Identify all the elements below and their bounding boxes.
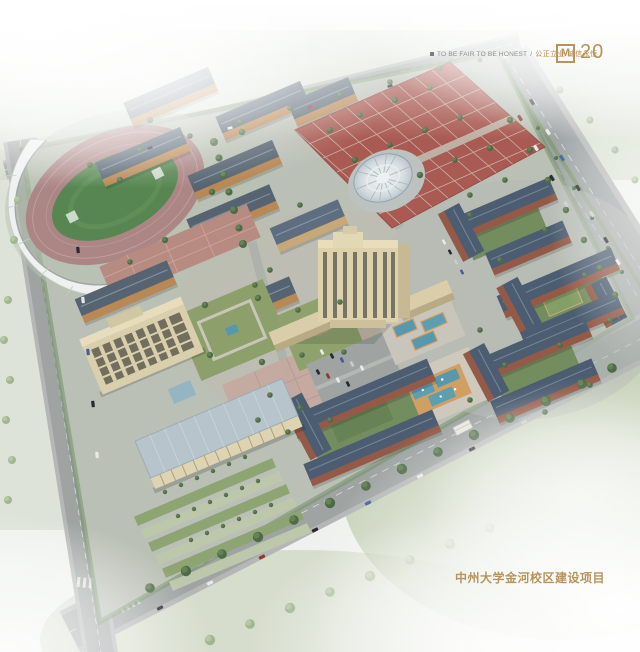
- page-number: 20: [580, 41, 604, 64]
- campus-aerial-rendering: TO BE FAIR TO BE HONEST / 公正立业 诚信永恒 M 20…: [0, 0, 640, 652]
- mist-overlay: [0, 0, 640, 652]
- project-title: 中州大学金河校区建设项目: [455, 569, 605, 586]
- campus-scene-illustration: [0, 0, 640, 652]
- tagline-english: TO BE FAIR TO BE HONEST: [437, 51, 527, 58]
- tagline-mark-icon: [430, 52, 434, 56]
- company-logo-icon: M: [556, 44, 575, 63]
- tagline-separator: /: [530, 51, 532, 58]
- logo-letter: M: [561, 48, 570, 59]
